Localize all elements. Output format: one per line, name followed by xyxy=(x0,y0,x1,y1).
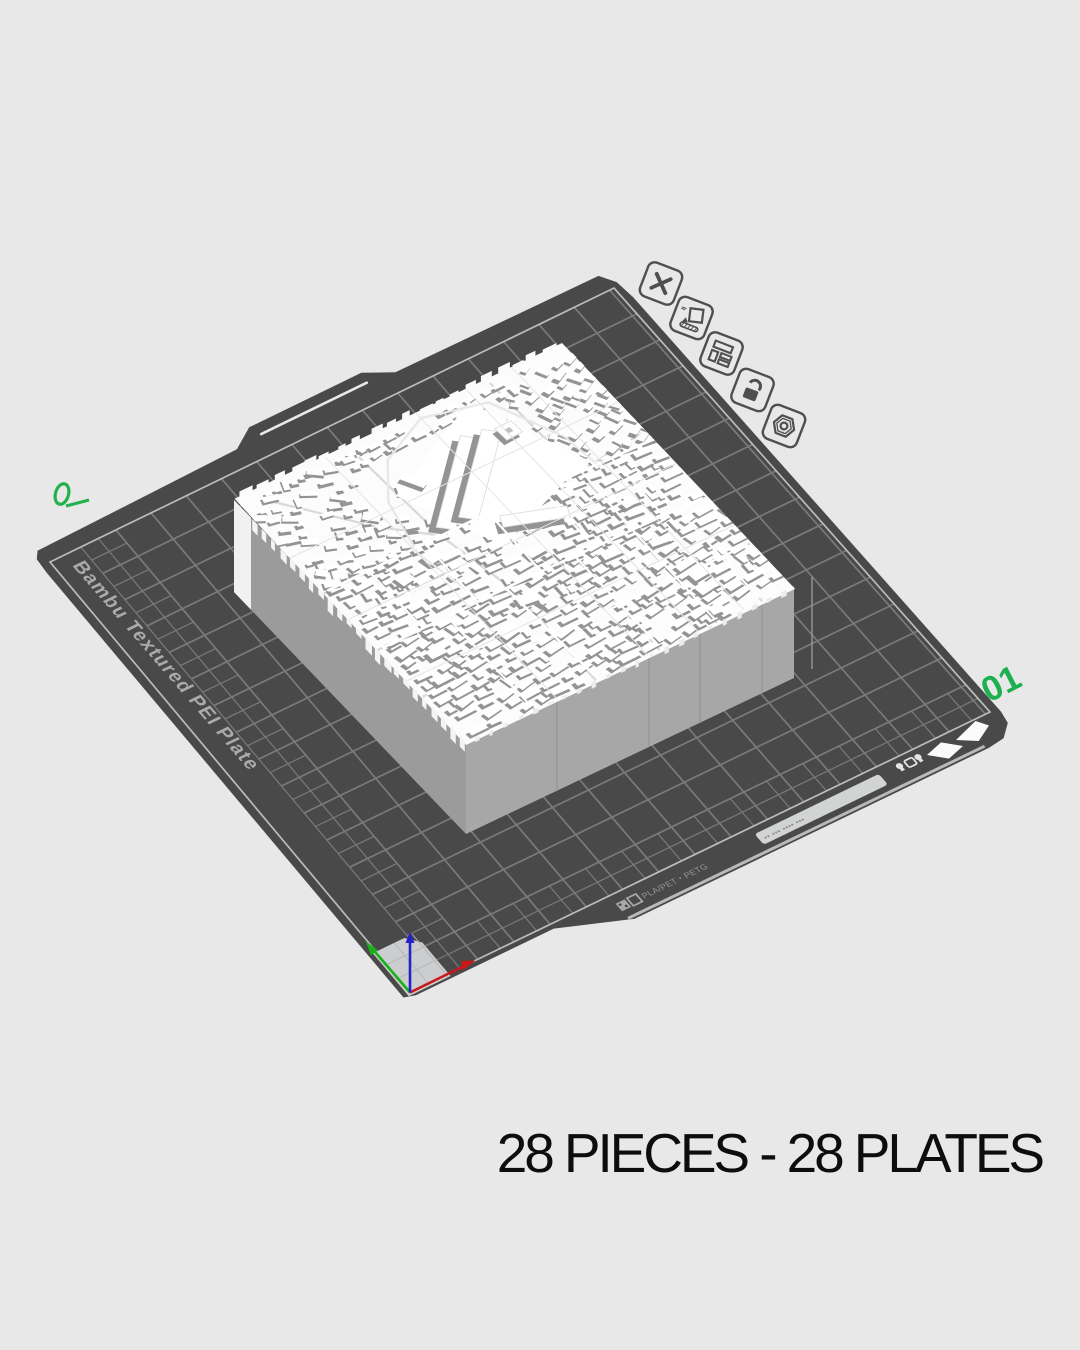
svg-text:28 PIECES - 28 PLATES: 28 PIECES - 28 PLATES xyxy=(497,1122,1044,1184)
